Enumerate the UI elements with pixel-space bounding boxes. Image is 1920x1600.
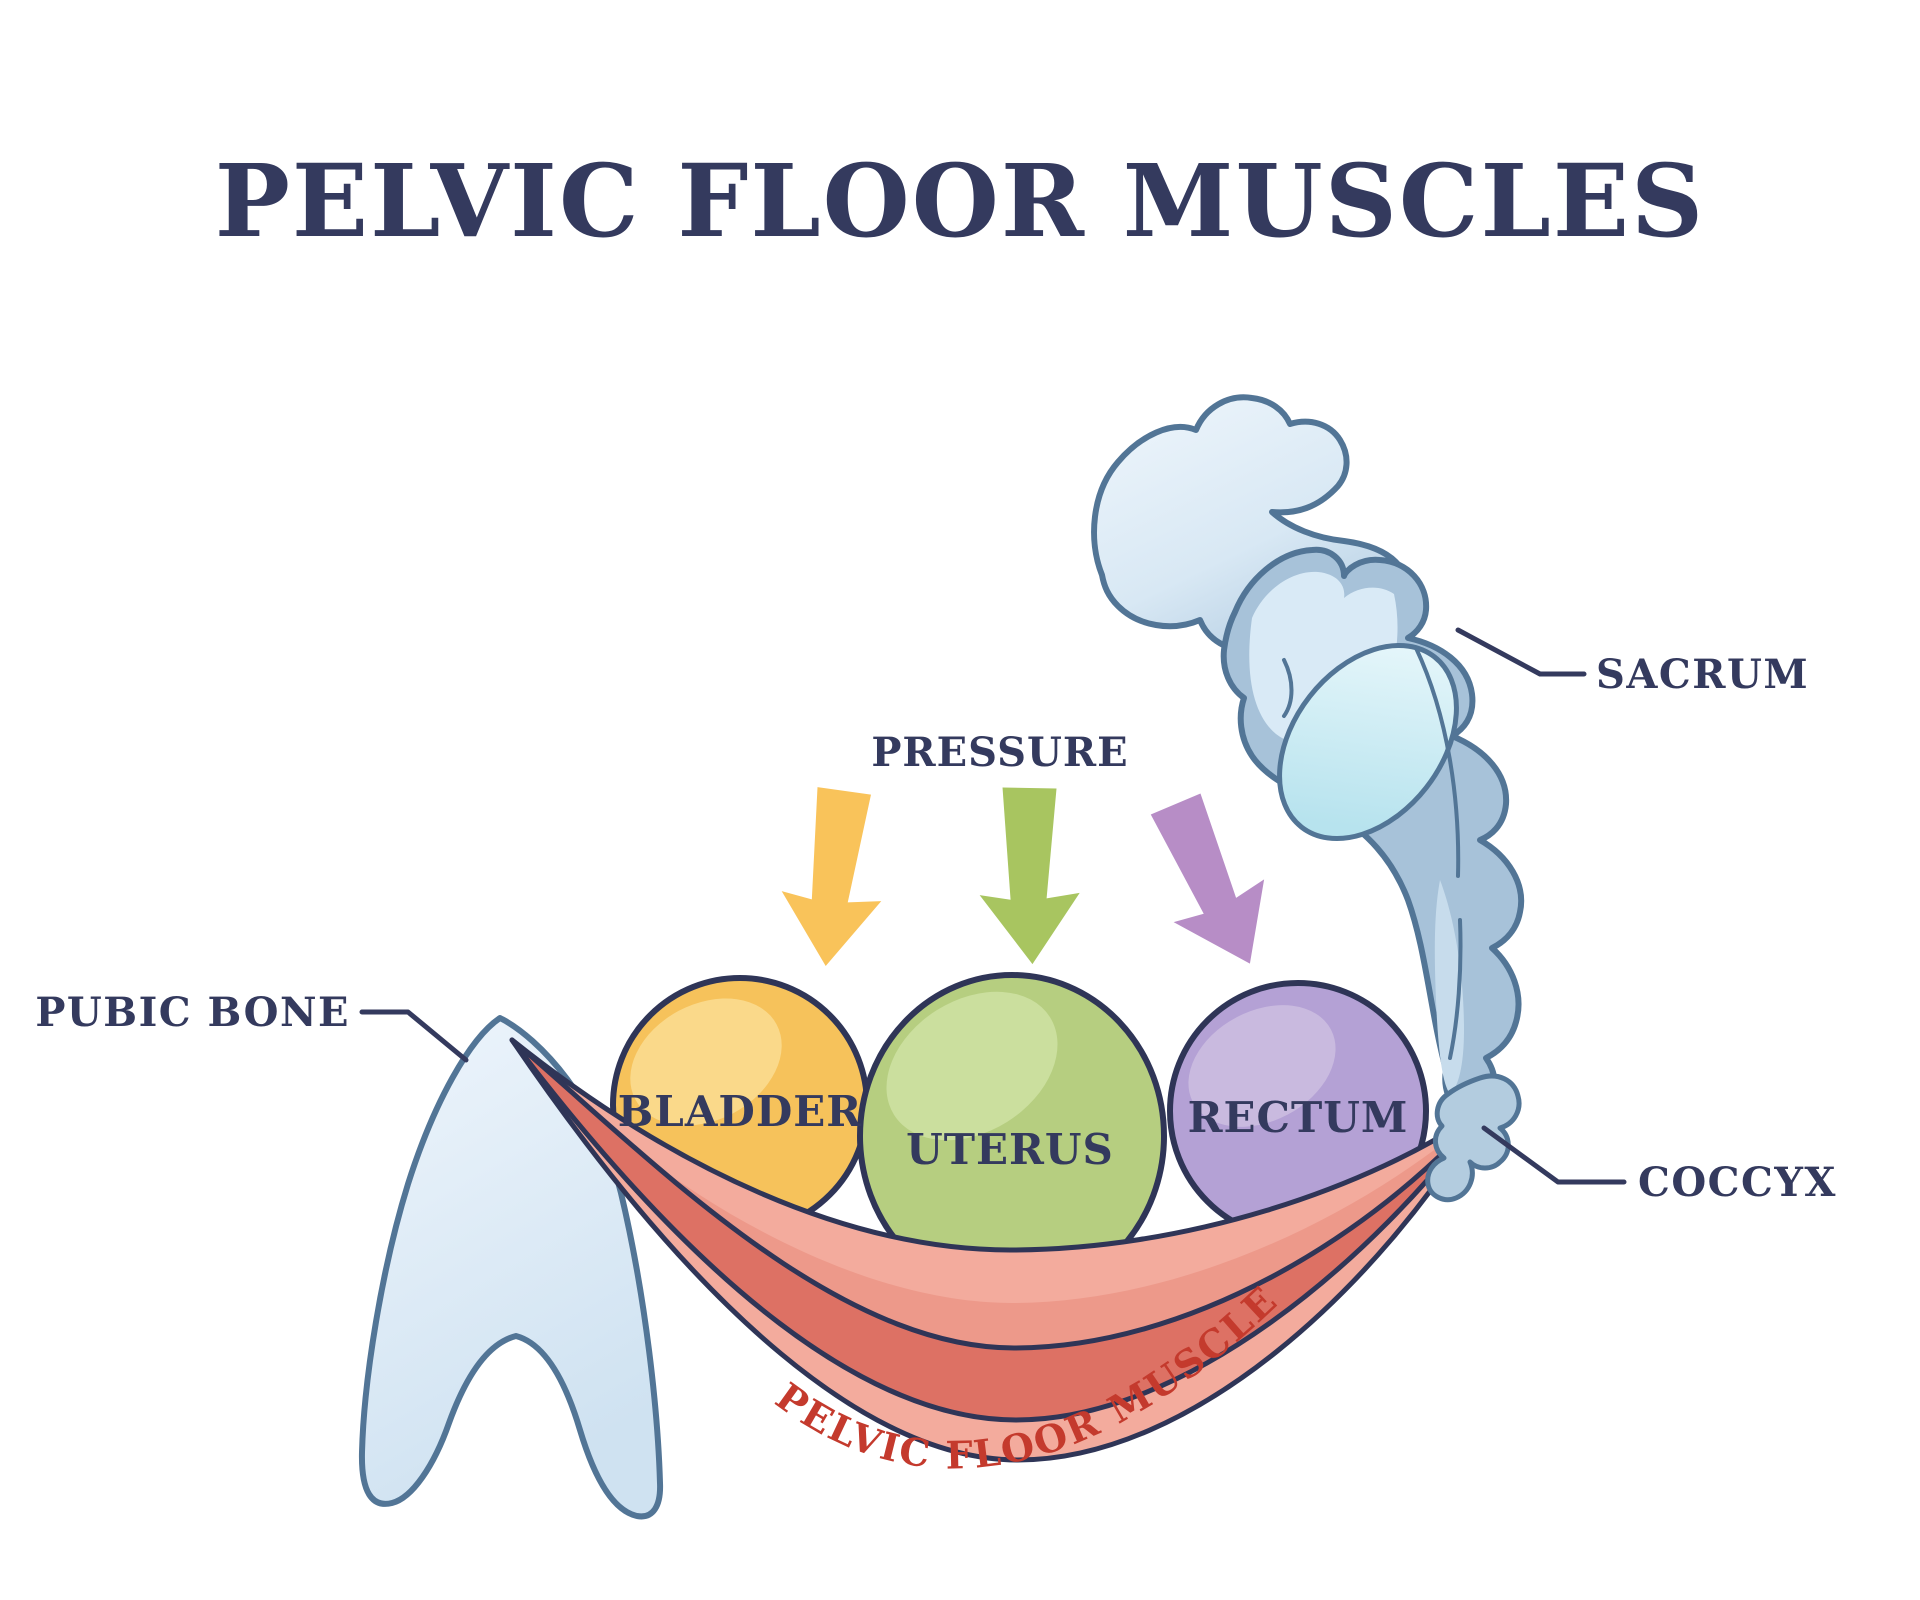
pressure-arrows-group (772, 784, 1292, 985)
sacrum-label: SACRUM (1596, 651, 1809, 698)
pressure-arrow-purple (1131, 784, 1292, 985)
page-title: PELVIC FLOOR MUSCLES (215, 142, 1706, 260)
uterus-label: UTERUS (906, 1125, 1114, 1174)
pelvic-floor-diagram: PELVIC FLOOR MUSCLES PRESSURE PUBIC BONE… (0, 0, 1920, 1600)
sacrum-pointer-line (1458, 630, 1584, 674)
bladder-label: BLADDER (618, 1087, 862, 1136)
coccyx-label: COCCYX (1638, 1159, 1837, 1206)
pubic-bone-label: PUBIC BONE (35, 989, 350, 1036)
pressure-label: PRESSURE (871, 729, 1128, 776)
pressure-arrow-yellow (772, 784, 896, 972)
pubic-bone-pointer-line (362, 1012, 466, 1060)
pressure-arrow-green (978, 787, 1081, 965)
rectum-label: RECTUM (1188, 1093, 1409, 1142)
coccyx-shape (1428, 1076, 1519, 1200)
